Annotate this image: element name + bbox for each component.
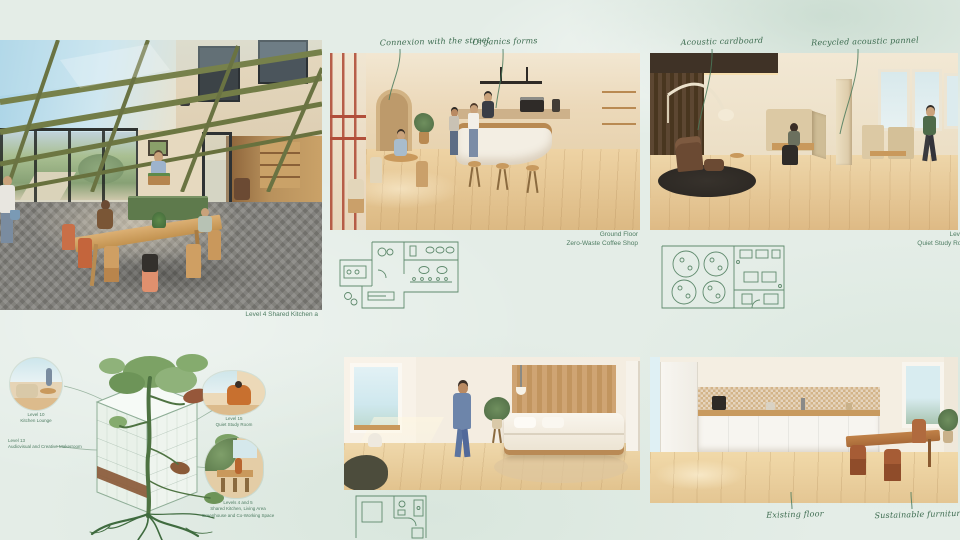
pot xyxy=(943,431,953,443)
torso xyxy=(97,209,113,229)
chair-wood xyxy=(186,244,201,278)
vignette-window xyxy=(10,358,62,382)
desk-chair xyxy=(368,433,382,447)
terrace-caption-text: Level 4 Shared Kitchen a xyxy=(120,311,318,320)
legs xyxy=(462,429,471,457)
vignette-stool xyxy=(245,478,249,492)
vignette-figure-head xyxy=(235,381,242,388)
figure-person-left-edge xyxy=(0,176,20,256)
annotation-recycled-panel: Recycled acoustic pannel xyxy=(800,35,930,47)
dining-chair xyxy=(884,449,901,481)
coffee-grinder xyxy=(552,99,560,112)
stand-leg xyxy=(492,429,496,443)
terrace-render xyxy=(0,40,322,310)
legs xyxy=(450,131,458,155)
bed xyxy=(504,413,624,455)
pillow xyxy=(542,417,564,428)
torso xyxy=(923,116,936,135)
vignette-stool xyxy=(221,478,225,492)
table-leg xyxy=(928,439,931,467)
jar xyxy=(846,403,852,410)
torso xyxy=(198,216,212,232)
figure-barista xyxy=(480,93,496,123)
vignette-floor xyxy=(203,405,265,415)
light-cord xyxy=(500,67,502,82)
foliage xyxy=(938,409,958,431)
shelf xyxy=(602,107,636,109)
stack-diagram-panel: Level 10 Kitchen Lounge Level 15 Quiet S… xyxy=(0,350,335,540)
study-room-caption: Level Quiet Study Roo xyxy=(825,231,960,249)
callout-label-quiet-study: Level 15 Quiet Study Room xyxy=(203,416,265,429)
chair-terracotta xyxy=(78,238,92,268)
study-caption-line1: Level xyxy=(825,231,960,240)
figure-person-walking xyxy=(920,107,940,169)
wardrobe xyxy=(626,361,640,451)
booth-table xyxy=(870,151,906,156)
faucet xyxy=(802,400,804,410)
shelf xyxy=(602,91,636,93)
espresso-machine xyxy=(520,97,544,112)
stool-seat xyxy=(526,165,539,171)
wall-shelves xyxy=(602,81,636,131)
study-room-render xyxy=(650,53,958,230)
vignette-armchair xyxy=(227,385,251,405)
cafe-chair xyxy=(348,179,364,213)
stool-leg xyxy=(526,171,531,193)
cafe-chair xyxy=(370,157,382,183)
plant xyxy=(938,409,958,449)
vignette-figure xyxy=(46,368,52,386)
study-room-panel: Acoustic cardboard Recycled acoustic pan… xyxy=(650,0,960,340)
vignette-figure xyxy=(235,458,242,474)
chair-wood xyxy=(104,246,119,282)
terrace-panel: Level 4 Shared Kitchen a xyxy=(0,0,330,340)
presentation-board: Level 4 Shared Kitchen a Connexion with … xyxy=(0,0,960,540)
arc-floor-lamp xyxy=(658,65,748,125)
side-table xyxy=(730,153,744,158)
stand-leg xyxy=(498,429,502,443)
potted-plant xyxy=(414,113,434,151)
kitchen-panel: Existing floor Sustainable furniture xyxy=(650,350,960,540)
cafe-chair xyxy=(416,161,428,187)
bucket xyxy=(10,210,20,220)
window xyxy=(878,69,910,131)
torso xyxy=(788,131,800,146)
foliage xyxy=(414,113,434,133)
annotation-existing-floor: Existing floor xyxy=(740,509,850,521)
callout-line: Audiovisual and Creative Makerroom xyxy=(8,444,100,450)
window xyxy=(650,357,660,452)
torso xyxy=(482,101,494,118)
torso xyxy=(468,113,479,129)
figure-seated-man xyxy=(392,131,410,165)
ottoman xyxy=(704,159,724,171)
legs xyxy=(928,135,937,161)
rug xyxy=(494,451,628,483)
callout-label-kitchen-lounge: Level 10 Kitchen Lounge xyxy=(4,412,68,425)
annotation-organic-forms: Organics forms xyxy=(455,36,555,48)
chair-black-salmon xyxy=(142,254,158,292)
vignette-kitchen-lounge xyxy=(10,358,62,410)
robe xyxy=(453,393,471,429)
dining-chair xyxy=(912,419,926,443)
figure-person-seated xyxy=(196,208,214,240)
pot xyxy=(419,132,429,144)
figure-person-blue xyxy=(450,383,474,459)
vignette-floor xyxy=(10,398,62,410)
stool-leg xyxy=(497,169,502,190)
bedroom-panel xyxy=(338,350,640,540)
dining-chair xyxy=(850,445,866,475)
coffee-caption-line2: Zero-Waste Coffee Shop xyxy=(480,240,638,249)
bar-stool xyxy=(496,163,509,190)
coffee-caption-line1: Ground Floor xyxy=(480,231,638,240)
cardboard-side-panel xyxy=(812,111,826,160)
plant xyxy=(484,397,510,447)
figure-customer xyxy=(448,109,462,161)
callout-label-makerspace: Level 13 Audiovisual and Creative Makerr… xyxy=(8,438,100,451)
torso xyxy=(0,185,15,213)
callout-label-shared-levels: Levels 4 and 5 Shared Kitchen, Living Ar… xyxy=(192,500,284,519)
study-room-floor-plan xyxy=(652,230,794,318)
veggie-crate xyxy=(148,176,170,185)
bar-stool xyxy=(526,165,539,193)
stool-seat xyxy=(496,163,509,169)
light-cord xyxy=(526,67,528,82)
bedroom-floor-plan xyxy=(352,492,430,540)
vignette-window xyxy=(233,440,257,458)
pendant-light xyxy=(520,365,522,387)
callout-line: Greenhouse and Co-Working Space xyxy=(192,513,284,519)
kitchen-render xyxy=(650,357,958,503)
figure-customer xyxy=(466,105,482,165)
callout-line: Kitchen Lounge xyxy=(4,418,68,424)
desk xyxy=(354,425,400,430)
vignette-shared-kitchen xyxy=(205,438,263,498)
callout-line: Quiet Study Room xyxy=(203,422,265,428)
duvet-fold xyxy=(504,433,624,435)
lounge-chair xyxy=(674,136,703,173)
column xyxy=(836,79,852,165)
stool-leg xyxy=(476,167,481,187)
table-shadow xyxy=(70,252,260,298)
stool-leg xyxy=(469,167,474,187)
glazing-rail xyxy=(330,137,366,140)
coffee-machine xyxy=(712,396,726,410)
glazing-rail xyxy=(330,115,366,118)
table-plant xyxy=(152,212,166,228)
vignette-quiet-study xyxy=(203,371,265,415)
bedroom-render xyxy=(344,357,640,490)
bar-light-fixture xyxy=(480,81,542,84)
vignette-table xyxy=(40,388,56,394)
terrace-caption: Level 4 Shared Kitchen a xyxy=(120,311,318,320)
figure-woman-standing xyxy=(146,152,172,212)
study-caption-line2: Quiet Study Roo xyxy=(825,240,960,249)
coffee-shop-panel: Connexion with the street Organics forms xyxy=(330,0,642,340)
bean-bag xyxy=(344,455,388,490)
torso xyxy=(394,139,407,156)
tall-cabinet xyxy=(660,362,698,454)
pillow xyxy=(514,417,536,428)
torso xyxy=(449,116,459,131)
legs xyxy=(469,129,478,157)
annotation-sustainable-furniture: Sustainable furniture xyxy=(860,508,960,520)
vignette-sofa xyxy=(16,384,38,398)
wood-floor xyxy=(650,452,958,503)
coffee-shop-render xyxy=(330,53,640,230)
kettle xyxy=(766,402,775,410)
foliage xyxy=(484,397,510,421)
figure-person-seated xyxy=(94,200,116,240)
coffee-shop-caption: Ground Floor Zero-Waste Coffee Shop xyxy=(480,231,638,249)
vignette-stool xyxy=(233,478,237,492)
pot xyxy=(492,419,502,429)
stool-leg xyxy=(533,171,538,193)
shelf xyxy=(602,123,636,125)
light-pool xyxy=(654,460,744,490)
annotation-acoustic-cardboard: Acoustic cardboard xyxy=(662,35,782,47)
cardboard-cubicle xyxy=(766,109,830,165)
coffee-shop-floor-plan xyxy=(332,230,474,318)
chair-terracotta xyxy=(62,224,75,250)
stool-leg xyxy=(504,169,509,190)
window xyxy=(944,73,958,129)
cardboard-booth xyxy=(862,125,916,163)
office-chair xyxy=(782,145,798,165)
